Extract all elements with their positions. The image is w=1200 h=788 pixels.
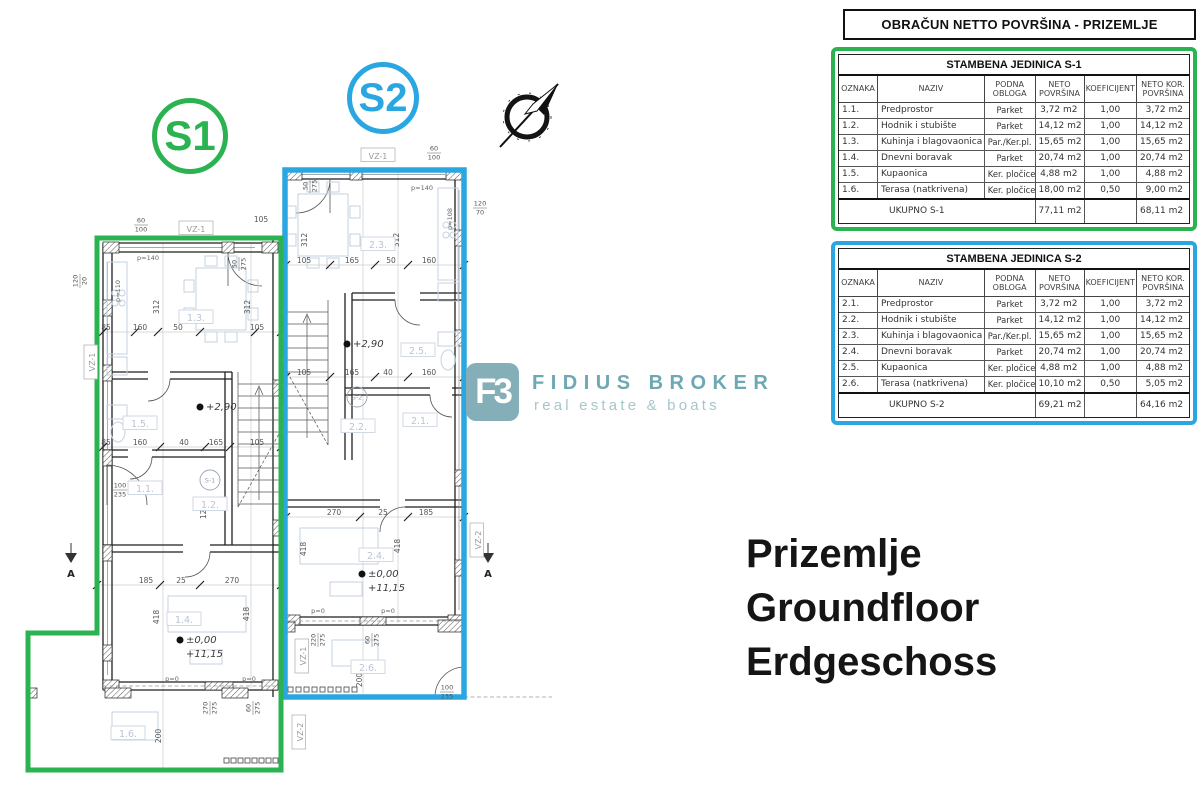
table-cell: 3,72 m2 [1137, 102, 1190, 118]
elevation-label-text: +11,15 [368, 583, 405, 594]
table-cell: Ker. pločice [984, 360, 1035, 376]
room-label-text: 2.5. [409, 346, 427, 357]
wall-type-label: VZ-2 [470, 523, 484, 557]
table-cell: 20,74 m2 [1137, 344, 1190, 360]
column-header: NETO POVRŠINA [1035, 270, 1084, 296]
dimension-label: 160 [133, 323, 148, 332]
stacked-dimension-label: 270275 [202, 701, 219, 715]
column-header: PODNA OBLOGA [984, 76, 1035, 102]
dimension-label-text: 85 [101, 438, 111, 447]
total-neto: 77,11 m2 [1035, 199, 1084, 223]
elevation-label: +2,90 [197, 402, 237, 413]
dimension-label: 105 [254, 215, 269, 224]
dimension-label: 185 [139, 576, 154, 585]
dimension-label-text: 105 [250, 438, 265, 447]
dimension-label: 312 [300, 233, 309, 248]
table-cell: Parket [984, 344, 1035, 360]
table-cell: 1,00 [1084, 102, 1137, 118]
room-label: 2.3. [361, 237, 395, 251]
table-cell: 0,50 [1084, 376, 1137, 393]
dimension-label-text: 418 [393, 539, 402, 554]
table-cell: 5,05 m2 [1137, 376, 1190, 393]
table-cell: Kuhinja i blagovaonica [878, 328, 985, 344]
total-label: UKUPNO S-1 [839, 199, 1035, 223]
table-cell: 1.4. [839, 150, 878, 166]
dimension-label-text: 105 [254, 215, 269, 224]
room-label-text: 1.5. [131, 419, 149, 430]
room-label-text: 2.6. [359, 663, 377, 674]
dimension-label-text: 160 [422, 256, 437, 265]
table-cell: Predprostor [878, 102, 985, 118]
table-cell: 2.1. [839, 296, 878, 312]
brand-tagline: real estate & boats [534, 397, 720, 414]
elevation-marker-icon [359, 571, 366, 578]
room-label-text: 2.1. [411, 416, 429, 427]
area-table-s2: STAMBENA JEDINICA S-2OZNAKANAZIVPODNA OB… [831, 241, 1197, 425]
area-table: OZNAKANAZIVPODNA OBLOGANETO POVRŠINAKOEF… [839, 76, 1189, 223]
table-cell: Terasa (natkrivena) [878, 376, 985, 393]
stair-section-mark-text: S-1 [205, 477, 216, 485]
table-cell: 10,10 m2 [1035, 376, 1084, 393]
dimension-label: 160 [422, 368, 437, 377]
table-cell: 1,00 [1084, 134, 1137, 150]
stacked-dimension-label-text: 275 [311, 180, 319, 192]
table-cell: 2.2. [839, 312, 878, 328]
elevation-label: +11,15 [186, 649, 223, 660]
elevation-label: +11,15 [368, 583, 405, 594]
wall-type-label-text: VZ-2 [474, 531, 483, 550]
dimension-label: 165 [345, 368, 360, 377]
floor-headline: Prizemlje Groundfloor Erdgeschoss [746, 527, 997, 689]
elevation-label-text: ±0,00 [186, 635, 217, 646]
stacked-dimension-label: 60100 [427, 145, 441, 162]
table-cell: Parket [984, 102, 1035, 118]
dimension-label-text: 312 [300, 233, 309, 248]
table-cell: 0,50 [1084, 182, 1137, 199]
dimension-label-text: 418 [152, 610, 161, 625]
wall-type-label: VZ-1 [84, 345, 98, 379]
brand-logo-icon: F3 [466, 363, 519, 421]
stacked-dimension-label-text: 60 [430, 145, 438, 153]
headline-line-en: Groundfloor [746, 581, 997, 635]
column-header: NETO KOR. POVRŠINA [1137, 270, 1190, 296]
column-header: NAZIV [878, 270, 985, 296]
table-cell: Predprostor [878, 296, 985, 312]
dimension-label-text: 165 [209, 438, 224, 447]
section-label-text: A [484, 569, 492, 580]
room-label: 2.5. [401, 343, 435, 357]
table-cell: 14,12 m2 [1137, 118, 1190, 134]
elevation-marker-icon [344, 341, 351, 348]
room-label: 1.2. [193, 497, 227, 511]
parapet-label-text: p=140 [411, 184, 433, 192]
dimension-label: 160 [133, 438, 148, 447]
elevation-marker-icon [177, 637, 184, 644]
table-cell: Parket [984, 118, 1035, 134]
stacked-dimension-label-text: 275 [254, 702, 262, 714]
table-cell: 4,88 m2 [1137, 166, 1190, 182]
dimension-label: 418 [393, 539, 402, 554]
table-cell: 20,74 m2 [1137, 150, 1190, 166]
dimension-label: 418 [242, 607, 251, 622]
table-cell: Parket [984, 312, 1035, 328]
stacked-dimension-label-text: 20 [81, 277, 89, 285]
area-table: OZNAKANAZIVPODNA OBLOGANETO POVRŠINAKOEF… [839, 270, 1189, 417]
table-row: 2.3.Kuhinja i blagovaonicaPar./Ker.pl.15… [839, 328, 1189, 344]
section-label: A [484, 569, 492, 580]
table-cell: Dnevni boravak [878, 344, 985, 360]
table-header-row: OZNAKANAZIVPODNA OBLOGANETO POVRŠINAKOEF… [839, 76, 1189, 102]
stacked-dimension-label-text: 70 [476, 209, 484, 217]
table-cell: 1,00 [1084, 312, 1137, 328]
stacked-dimension-label-text: 120 [474, 200, 486, 208]
table-cell: 2.6. [839, 376, 878, 393]
stacked-dimension-label-text: 60 [364, 636, 372, 644]
dimension-label: 312 [152, 300, 161, 315]
dimension-label: 165 [345, 256, 360, 265]
table-row: 2.6.Terasa (natkrivena)Ker. pločice10,10… [839, 376, 1189, 393]
parapet-label: p=108 [446, 208, 454, 230]
dimension-label: 200 [355, 673, 364, 688]
north-arrow-icon [500, 84, 558, 147]
wall-type-label: VZ-1 [295, 639, 309, 673]
parapet-label: p=0 [165, 675, 179, 683]
panel-title: OBRAČUN NETTO POVRŠINA - PRIZEMLJE [843, 9, 1196, 40]
dimension-label-text: 312 [152, 300, 161, 315]
parapet-label: p=0 [311, 607, 325, 615]
column-header: PODNA OBLOGA [984, 270, 1035, 296]
stair-section-mark-text: S-2 [352, 394, 363, 402]
table-cell: 2.5. [839, 360, 878, 376]
stacked-dimension-label-text: 60 [245, 704, 253, 712]
dimension-label-text: 160 [133, 438, 148, 447]
parapet-label-text: p=0 [242, 675, 256, 683]
table-row: 1.4.Dnevni boravakParket20,74 m21,0020,7… [839, 150, 1189, 166]
elevation-label-text: +2,90 [206, 402, 237, 413]
wall-type-label: VZ-2 [292, 715, 306, 749]
table-cell: 20,74 m2 [1035, 344, 1084, 360]
stacked-dimension-label-text: 275 [373, 634, 381, 646]
stacked-dimension-label: 220275 [310, 633, 327, 647]
room-label-text: 1.2. [201, 500, 219, 511]
total-koef [1084, 199, 1137, 223]
dimension-label: 270 [225, 576, 240, 585]
dimension-label-text: 25 [378, 508, 388, 517]
table-cell: 1.6. [839, 182, 878, 199]
elevation-label-text: +11,15 [186, 649, 223, 660]
table-cell: 1.5. [839, 166, 878, 182]
stacked-dimension-label: 12020 [72, 274, 89, 288]
total-neto: 69,21 m2 [1035, 393, 1084, 417]
dimension-label-text: 165 [345, 256, 360, 265]
dimension-label-text: 270 [225, 576, 240, 585]
elevation-label: ±0,00 [359, 569, 399, 580]
stacked-dimension-label: 100235 [113, 482, 127, 499]
dimension-label-text: 40 [179, 438, 189, 447]
stacked-dimension-label-text: 235 [441, 693, 453, 701]
wall-type-label-text: VZ-1 [369, 152, 388, 161]
dimension-label-text: 185 [419, 508, 434, 517]
room-label: 1.5. [123, 416, 157, 430]
table-cell: 3,72 m2 [1137, 296, 1190, 312]
section-label-text: A [67, 569, 75, 580]
table-cell: Hodnik i stubište [878, 118, 985, 134]
room-label: 2.2. [341, 419, 375, 433]
room-label: 1.6. [111, 726, 145, 740]
parapet-label: p=0 [242, 675, 256, 683]
room-label-text: 2.4. [367, 551, 385, 562]
table-header-row: OZNAKANAZIVPODNA OBLOGANETO POVRŠINAKOEF… [839, 270, 1189, 296]
headline-line-de: Erdgeschoss [746, 635, 997, 689]
stacked-dimension-label-text: 275 [211, 702, 219, 714]
table-cell: Hodnik i stubište [878, 312, 985, 328]
table-cell: 1.2. [839, 118, 878, 134]
dimension-label-text: 418 [242, 607, 251, 622]
table-row: 1.5.KupaonicaKer. pločice4,88 m21,004,88… [839, 166, 1189, 182]
table-row: 2.4.Dnevni boravakParket20,74 m21,0020,7… [839, 344, 1189, 360]
column-header: KOEFICIJENT [1084, 76, 1137, 102]
table-cell: 4,88 m2 [1035, 166, 1084, 182]
stacked-dimension-label: 60275 [245, 701, 262, 715]
table-cell: 2.3. [839, 328, 878, 344]
table-row: 1.1.PredprostorParket3,72 m21,003,72 m2 [839, 102, 1189, 118]
dimension-label: 50 [386, 256, 396, 265]
dimension-label: 40 [383, 368, 393, 377]
parapet-label-text: p=0 [165, 675, 179, 683]
parapet-label-text: p=110 [114, 280, 122, 302]
dimension-label: 85 [101, 323, 111, 332]
dimension-label-text: 105 [297, 256, 312, 265]
dimension-label: 40 [179, 438, 189, 447]
dimension-label-text: 270 [327, 508, 342, 517]
dimension-label: 312 [243, 300, 252, 315]
table-cell: 3,72 m2 [1035, 102, 1084, 118]
stacked-dimension-label: 12070 [473, 200, 487, 217]
table-cell: 1,00 [1084, 118, 1137, 134]
headline-line-hr: Prizemlje [746, 527, 997, 581]
room-label: 2.6. [351, 660, 385, 674]
room-label-text: 1.1. [136, 484, 154, 495]
table-cell: Parket [984, 296, 1035, 312]
total-koef [1084, 393, 1137, 417]
dimension-label-text: 200 [154, 729, 163, 744]
room-label-text: 1.3. [187, 313, 205, 324]
dimension-label: 105 [297, 368, 312, 377]
dimension-label: 185 [419, 508, 434, 517]
parapet-label-text: p=108 [446, 208, 454, 230]
column-header: OZNAKA [839, 270, 878, 296]
dimension-label: 50 [173, 323, 183, 332]
column-header: NAZIV [878, 76, 985, 102]
stair-section-mark: S-1 [200, 470, 220, 490]
column-header: OZNAKA [839, 76, 878, 102]
total-neto-kor: 68,11 m2 [1137, 199, 1190, 223]
dimension-label-text: 25 [176, 576, 186, 585]
room-label-text: 1.4. [175, 615, 193, 626]
table-row: 1.2.Hodnik i stubišteParket14,12 m21,001… [839, 118, 1189, 134]
stacked-dimension-label: 50275 [231, 257, 248, 271]
dimension-label: 165 [209, 438, 224, 447]
table-title: STAMBENA JEDINICA S-2 [839, 249, 1189, 270]
brand-logo-monogram: F3 [475, 372, 510, 412]
dimension-label: 270 [327, 508, 342, 517]
table-cell: 3,72 m2 [1035, 296, 1084, 312]
table-cell: Kuhinja i blagovaonica [878, 134, 985, 150]
room-label-text: 2.2. [349, 422, 367, 433]
stacked-dimension-label: 100235 [440, 684, 454, 701]
parapet-label: p=140 [137, 254, 159, 262]
parapet-label-text: p=140 [137, 254, 159, 262]
wall-type-label-text: VZ-1 [187, 225, 206, 234]
table-cell: Dnevni boravak [878, 150, 985, 166]
dimension-label-text: 50 [173, 323, 183, 332]
table-cell: Par./Ker.pl. [984, 328, 1035, 344]
room-label: 1.3. [179, 310, 213, 324]
table-cell: 18,00 m2 [1035, 182, 1084, 199]
dimension-label-text: 160 [422, 368, 437, 377]
room-label-text: 2.3. [369, 240, 387, 251]
table-cell: 14,12 m2 [1035, 312, 1084, 328]
room-label: 2.4. [359, 548, 393, 562]
total-label: UKUPNO S-2 [839, 393, 1035, 417]
total-neto-kor: 64,16 m2 [1137, 393, 1190, 417]
column-header: NETO KOR. POVRŠINA [1137, 76, 1190, 102]
elevation-label: ±0,00 [177, 635, 217, 646]
dimension-label: 25 [378, 508, 388, 517]
dimension-label-text: 105 [250, 323, 265, 332]
dimension-label: 105 [250, 438, 265, 447]
unit-badge-s2: S2 [347, 62, 419, 134]
parapet-label-text: p=0 [311, 607, 325, 615]
stair-section-mark: S-2 [347, 387, 367, 407]
table-cell: 1.3. [839, 134, 878, 150]
table-cell: 14,12 m2 [1035, 118, 1084, 134]
stacked-dimension-label-text: 50 [231, 260, 239, 268]
elevation-label-text: +2,90 [353, 339, 384, 350]
stacked-dimension-label-text: 100 [441, 684, 453, 692]
dimension-label-text: 200 [355, 673, 364, 688]
table-cell: 14,12 m2 [1137, 312, 1190, 328]
dimension-label-text: 160 [133, 323, 148, 332]
table-total-row: UKUPNO S-177,11 m268,11 m2 [839, 199, 1189, 223]
dimension-label-text: 185 [139, 576, 154, 585]
table-row: 1.3.Kuhinja i blagovaonicaPar./Ker.pl.15… [839, 134, 1189, 150]
wall-type-label-text: VZ-2 [296, 723, 305, 742]
table-cell: 15,65 m2 [1035, 134, 1084, 150]
room-label-text: 1.6. [119, 729, 137, 740]
page: 1058516050105312312851604016510518525270… [0, 0, 1200, 788]
walls-s1 [103, 238, 281, 697]
room-label: 1.4. [167, 612, 201, 626]
brand-name: FIDIUS BROKER [532, 372, 774, 395]
stacked-dimension-label-text: 100 [114, 482, 126, 490]
section-label: A [67, 569, 75, 580]
table-cell: 2.4. [839, 344, 878, 360]
stacked-dimension-label-text: 275 [319, 634, 327, 646]
stacked-dimension-label-text: 235 [114, 491, 126, 499]
stacked-dimension-label-text: 275 [240, 258, 248, 270]
parapet-label: p=110 [114, 280, 122, 302]
parapet-label: p=0 [381, 607, 395, 615]
column-header: KOEFICIJENT [1084, 270, 1137, 296]
parapet-label: p=140 [411, 184, 433, 192]
stacked-dimension-label: 60100 [134, 217, 148, 234]
table-cell: 1,00 [1084, 166, 1137, 182]
table-cell: Ker. pločice [984, 166, 1035, 182]
table-total-row: UKUPNO S-269,21 m264,16 m2 [839, 393, 1189, 417]
stacked-dimension-label-text: 50 [302, 182, 310, 190]
table-cell: Par./Ker.pl. [984, 134, 1035, 150]
stacked-dimension-label-text: 100 [428, 154, 440, 162]
table-cell: 15,65 m2 [1035, 328, 1084, 344]
table-title: STAMBENA JEDINICA S-1 [839, 55, 1189, 76]
table-row: 2.1.PredprostorParket3,72 m21,003,72 m2 [839, 296, 1189, 312]
table-inner: STAMBENA JEDINICA S-2OZNAKANAZIVPODNA OB… [838, 248, 1190, 418]
dimension-label-text: 105 [297, 368, 312, 377]
table-cell: 15,65 m2 [1137, 328, 1190, 344]
dimension-label-text: 85 [101, 323, 111, 332]
stacked-dimension-label-text: 60 [137, 217, 145, 225]
dimension-label: 85 [101, 438, 111, 447]
wall-type-label: VZ-1 [361, 148, 395, 162]
dimension-label: 418 [152, 610, 161, 625]
elevation-label: +2,90 [344, 339, 384, 350]
dimension-label-text: 418 [299, 542, 308, 557]
dimension-label: 160 [422, 256, 437, 265]
unit-badge-s2-label: S2 [359, 76, 408, 121]
table-cell: 1,00 [1084, 150, 1137, 166]
table-inner: STAMBENA JEDINICA S-1OZNAKANAZIVPODNA OB… [838, 54, 1190, 224]
table-row: 2.2.Hodnik i stubišteParket14,12 m21,001… [839, 312, 1189, 328]
table-cell: Parket [984, 150, 1035, 166]
table-cell: 20,74 m2 [1035, 150, 1084, 166]
dimension-label-text: 165 [345, 368, 360, 377]
stacked-dimension-label-text: 270 [202, 702, 210, 714]
stacked-dimension-label-text: 120 [72, 275, 80, 287]
area-table-s1: STAMBENA JEDINICA S-1OZNAKANAZIVPODNA OB… [831, 47, 1197, 231]
dimension-label-text: 312 [243, 300, 252, 315]
table-cell: 1,00 [1084, 344, 1137, 360]
elevation-marker-icon [197, 404, 204, 411]
stacked-dimension-label: 50275 [302, 179, 319, 193]
table-cell: Ker. pločice [984, 376, 1035, 393]
table-cell: 4,88 m2 [1035, 360, 1084, 376]
unit-badge-s1: S1 [152, 98, 228, 174]
table-cell: 1,00 [1084, 296, 1137, 312]
dimension-label-text: 40 [383, 368, 393, 377]
stacked-dimension-label: 60275 [364, 633, 381, 647]
stacked-dimension-label-text: 220 [310, 634, 318, 646]
table-cell: 1,00 [1084, 360, 1137, 376]
dimension-label: 200 [154, 729, 163, 744]
table-cell: 4,88 m2 [1137, 360, 1190, 376]
dimension-label: 25 [176, 576, 186, 585]
room-label: 1.1. [128, 481, 162, 495]
table-cell: Kupaonica [878, 166, 985, 182]
table-cell: 1,00 [1084, 328, 1137, 344]
table-cell: 9,00 m2 [1137, 182, 1190, 199]
table-cell: 1.1. [839, 102, 878, 118]
elevation-label-text: ±0,00 [368, 569, 399, 580]
section-marker-left [65, 543, 77, 563]
wall-type-label-text: VZ-1 [299, 647, 308, 666]
room-label: 2.1. [403, 413, 437, 427]
dimension-label: 105 [297, 256, 312, 265]
dimension-label: 105 [250, 323, 265, 332]
table-cell: 15,65 m2 [1137, 134, 1190, 150]
dimension-label-text: 50 [386, 256, 396, 265]
parapet-label-text: p=0 [381, 607, 395, 615]
